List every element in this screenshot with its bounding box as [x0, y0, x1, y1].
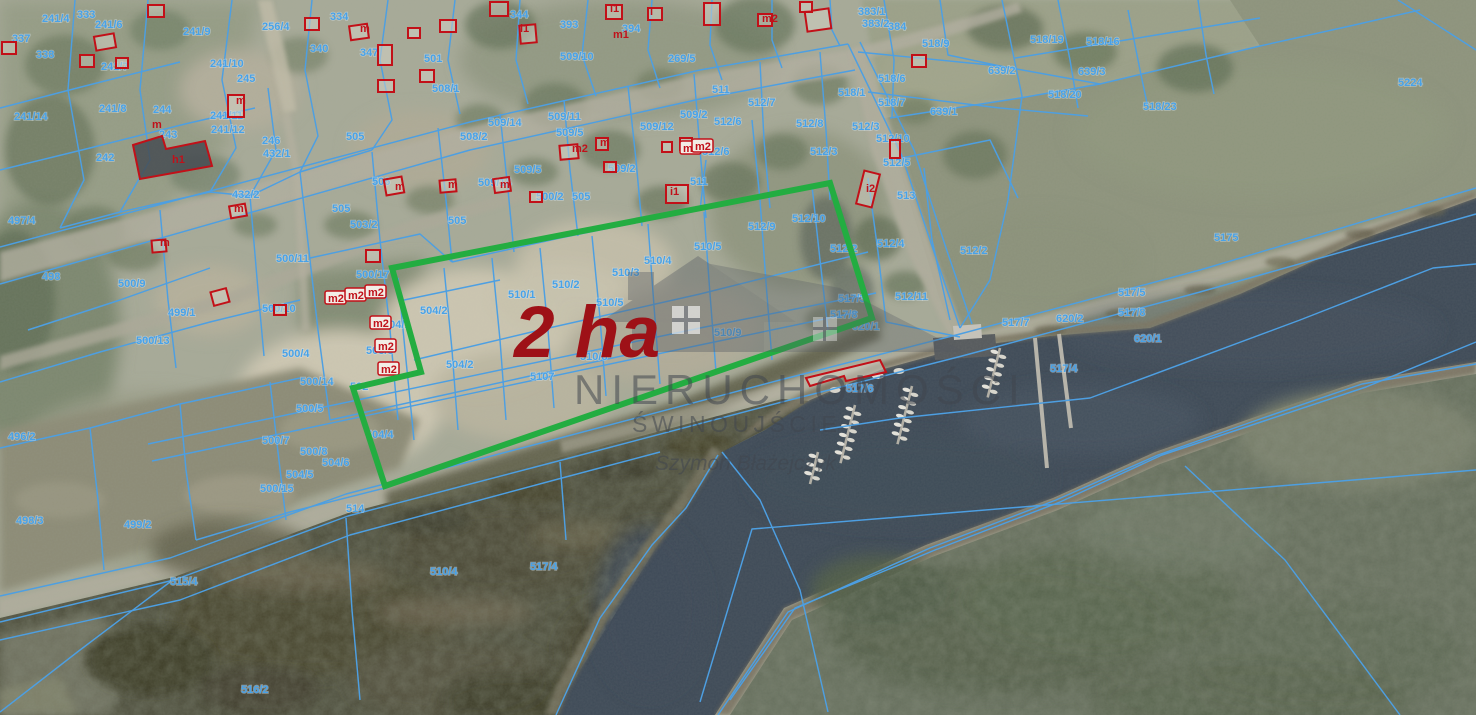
- svg-text:509/12: 509/12: [640, 121, 674, 133]
- svg-text:514: 514: [346, 503, 365, 515]
- svg-text:432/2: 432/2: [232, 189, 260, 201]
- svg-text:Szymon Błażejczyk: Szymon Błażejczyk: [655, 452, 837, 475]
- svg-text:512/6: 512/6: [714, 116, 742, 128]
- svg-text:510/4: 510/4: [644, 255, 672, 267]
- svg-text:500/5: 500/5: [296, 403, 324, 415]
- svg-text:509/5: 509/5: [556, 127, 584, 139]
- svg-text:510/4: 510/4: [430, 566, 458, 578]
- svg-text:383/1: 383/1: [858, 6, 886, 18]
- svg-text:344: 344: [510, 9, 529, 21]
- svg-text:518/7: 518/7: [878, 97, 906, 109]
- svg-text:518/1: 518/1: [838, 87, 866, 99]
- svg-text:512/8: 512/8: [796, 118, 824, 130]
- svg-text:393: 393: [560, 19, 578, 31]
- svg-text:m2: m2: [381, 364, 397, 376]
- svg-text:m: m: [600, 137, 610, 149]
- svg-text:m2: m2: [378, 341, 394, 353]
- svg-text:241/12: 241/12: [211, 124, 245, 136]
- svg-text:510/5: 510/5: [694, 241, 722, 253]
- svg-text:347: 347: [360, 47, 378, 59]
- svg-text:245: 245: [237, 73, 255, 85]
- svg-text:511: 511: [690, 176, 708, 188]
- svg-text:m2: m2: [368, 287, 384, 299]
- svg-text:497/4: 497/4: [8, 215, 36, 227]
- svg-text:639/3: 639/3: [1078, 66, 1106, 78]
- svg-text:620/2: 620/2: [1056, 313, 1084, 325]
- svg-text:512/4: 512/4: [877, 238, 905, 250]
- svg-text:241/14: 241/14: [14, 111, 49, 123]
- svg-text:512/2: 512/2: [960, 245, 988, 257]
- svg-text:517/5: 517/5: [1118, 287, 1146, 299]
- svg-text:244: 244: [153, 104, 172, 116]
- svg-text:m: m: [160, 237, 170, 249]
- svg-text:241/4: 241/4: [42, 13, 70, 25]
- svg-text:499/2: 499/2: [124, 519, 152, 531]
- svg-text:5175: 5175: [1214, 232, 1238, 244]
- svg-text:241/9: 241/9: [183, 26, 211, 38]
- svg-text:384: 384: [888, 21, 907, 33]
- svg-text:500/4: 500/4: [282, 348, 310, 360]
- svg-text:509/11: 509/11: [548, 111, 581, 123]
- svg-text:340: 340: [310, 43, 328, 55]
- svg-text:518/9: 518/9: [922, 38, 950, 50]
- svg-text:505: 505: [346, 131, 364, 143]
- svg-text:504/6: 504/6: [322, 457, 350, 469]
- svg-text:500/9: 500/9: [118, 278, 146, 290]
- svg-text:518/6: 518/6: [878, 73, 906, 85]
- svg-text:i2: i2: [866, 183, 875, 195]
- svg-text:499/1: 499/1: [168, 307, 196, 319]
- svg-text:338: 338: [36, 49, 54, 61]
- svg-text:518/19: 518/19: [1030, 34, 1064, 46]
- svg-text:5224: 5224: [1398, 77, 1423, 89]
- svg-text:512/3: 512/3: [852, 121, 880, 133]
- svg-text:500/11: 500/11: [276, 253, 309, 265]
- svg-text:517/7: 517/7: [1002, 317, 1030, 329]
- svg-text:513: 513: [897, 190, 915, 202]
- svg-text:m: m: [448, 179, 458, 191]
- svg-text:269/5: 269/5: [668, 53, 696, 65]
- svg-text:334: 334: [330, 11, 349, 23]
- svg-text:i1: i1: [670, 186, 679, 198]
- svg-text:511: 511: [712, 84, 730, 96]
- svg-text:m: m: [152, 119, 162, 131]
- svg-text:518/20: 518/20: [1048, 89, 1082, 101]
- svg-text:515/4: 515/4: [170, 576, 198, 588]
- svg-text:m: m: [500, 179, 510, 191]
- svg-text:509/10: 509/10: [560, 51, 594, 63]
- svg-text:m2: m2: [328, 293, 344, 305]
- svg-text:501: 501: [424, 53, 442, 65]
- svg-text:m2: m2: [695, 141, 711, 153]
- svg-text:504/2: 504/2: [420, 305, 448, 317]
- svg-text:517/4: 517/4: [530, 561, 558, 573]
- svg-text:518/16: 518/16: [1086, 36, 1120, 48]
- svg-text:500/13: 500/13: [136, 335, 170, 347]
- svg-text:m: m: [395, 181, 405, 193]
- svg-text:m2: m2: [348, 290, 364, 302]
- svg-text:498/3: 498/3: [16, 515, 44, 527]
- svg-text:m: m: [236, 95, 246, 107]
- svg-text:510/2: 510/2: [552, 279, 580, 291]
- svg-text:241/6: 241/6: [95, 19, 123, 31]
- svg-text:518/23: 518/23: [1143, 101, 1177, 113]
- svg-text:517/8: 517/8: [1118, 307, 1146, 319]
- svg-text:m: m: [360, 23, 370, 35]
- svg-text:m2: m2: [762, 13, 778, 25]
- svg-text:512/3: 512/3: [810, 146, 838, 158]
- svg-text:509/2: 509/2: [680, 109, 708, 121]
- svg-text:508/2: 508/2: [460, 131, 488, 143]
- svg-text:503/2: 503/2: [350, 219, 378, 231]
- svg-text:m2: m2: [373, 318, 389, 330]
- svg-text:639/1: 639/1: [930, 106, 958, 118]
- svg-text:m2: m2: [572, 143, 588, 155]
- svg-text:512/11: 512/11: [895, 291, 928, 303]
- svg-text:639/2: 639/2: [988, 65, 1016, 77]
- svg-text:383/2: 383/2: [862, 18, 890, 30]
- svg-text:505: 505: [448, 215, 466, 227]
- svg-text:496/2: 496/2: [8, 431, 36, 443]
- svg-text:505: 505: [332, 203, 350, 215]
- svg-text:500/7: 500/7: [262, 435, 290, 447]
- svg-text:241/8: 241/8: [99, 103, 127, 115]
- svg-text:512/10: 512/10: [792, 213, 826, 225]
- svg-text:333: 333: [77, 9, 95, 21]
- svg-text:m: m: [234, 203, 244, 215]
- svg-text:ŚWINOUJŚCIE: ŚWINOUJŚCIE: [632, 410, 841, 437]
- svg-text:h1: h1: [172, 154, 185, 166]
- svg-text:i1: i1: [610, 3, 619, 15]
- svg-text:i: i: [650, 6, 653, 18]
- svg-text:500/15: 500/15: [260, 483, 294, 495]
- svg-text:256/4: 256/4: [262, 21, 290, 33]
- svg-text:500/17: 500/17: [356, 269, 390, 281]
- svg-text:512/9: 512/9: [748, 221, 776, 233]
- svg-text:504/5: 504/5: [286, 469, 314, 481]
- svg-text:505: 505: [572, 191, 590, 203]
- svg-text:241/10: 241/10: [210, 58, 244, 70]
- svg-text:517/4: 517/4: [1050, 363, 1078, 375]
- svg-text:432/1: 432/1: [263, 148, 291, 160]
- svg-text:246: 246: [262, 135, 280, 147]
- svg-text:512/7: 512/7: [748, 97, 776, 109]
- svg-text:242: 242: [96, 152, 114, 164]
- svg-text:508/1: 508/1: [432, 83, 460, 95]
- svg-text:2 ha: 2 ha: [512, 292, 660, 373]
- svg-text:504/2: 504/2: [446, 359, 474, 371]
- svg-text:509/14: 509/14: [488, 117, 523, 129]
- svg-text:509/5: 509/5: [514, 164, 542, 176]
- svg-text:516/2: 516/2: [241, 684, 269, 696]
- svg-text:498: 498: [42, 271, 60, 283]
- svg-text:620/1: 620/1: [1134, 333, 1162, 345]
- svg-text:m1: m1: [613, 29, 629, 41]
- svg-text:500/14: 500/14: [300, 376, 335, 388]
- svg-text:i1: i1: [520, 23, 529, 35]
